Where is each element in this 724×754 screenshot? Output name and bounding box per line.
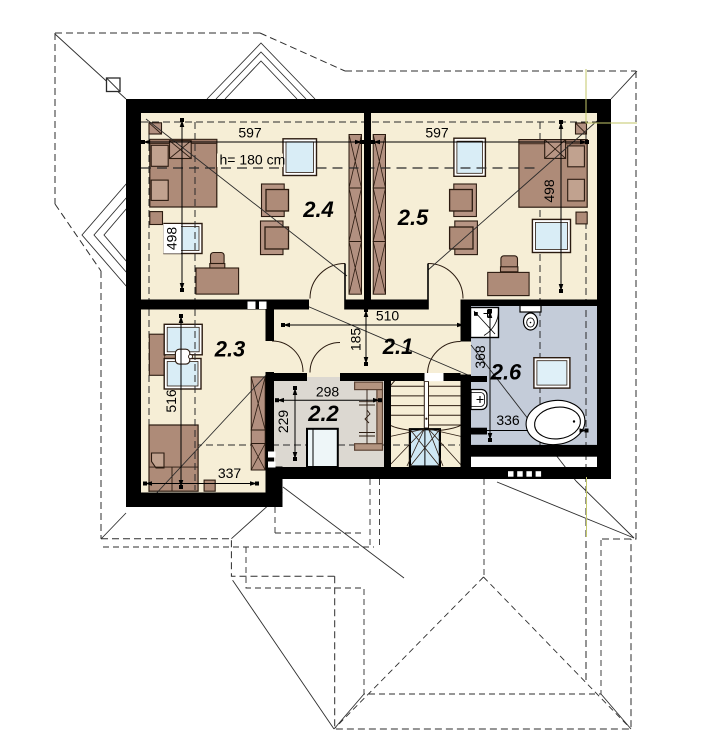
svg-text:498: 498 [541,179,557,203]
svg-text:2.6: 2.6 [490,360,522,385]
svg-text:2.2: 2.2 [307,401,339,426]
svg-text:2.4: 2.4 [302,197,334,222]
svg-text:185: 185 [348,328,364,352]
svg-text:2.5: 2.5 [397,205,429,230]
svg-text:229: 229 [275,410,291,434]
svg-text:337: 337 [218,465,242,481]
svg-text:368: 368 [472,345,488,369]
svg-text:597: 597 [425,125,449,141]
svg-text:h= 180 cm: h= 180 cm [220,152,286,168]
svg-text:336: 336 [496,412,520,428]
svg-text:516: 516 [163,389,179,413]
svg-text:597: 597 [238,125,262,141]
svg-text:298: 298 [316,384,340,400]
svg-text:510: 510 [376,308,400,324]
svg-text:498: 498 [164,227,180,251]
svg-text:2.1: 2.1 [382,334,414,359]
svg-text:2.3: 2.3 [214,337,246,362]
